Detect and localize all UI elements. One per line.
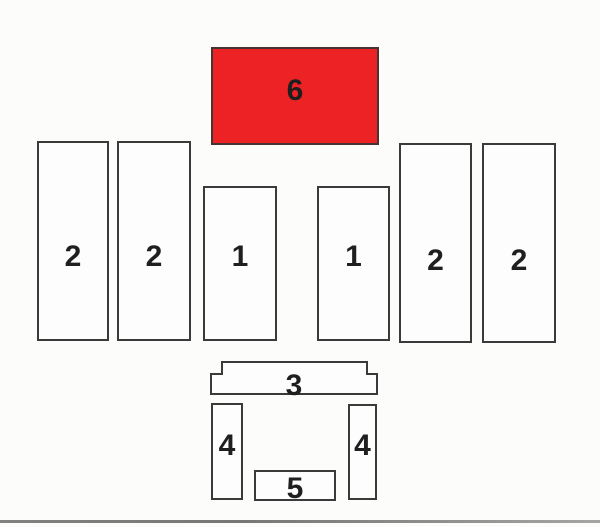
part-2-box-right-outer: 2 (482, 143, 556, 343)
part-1-box-left: 1 (203, 186, 277, 341)
part-5-box: 5 (254, 470, 336, 501)
part-6-box-highlighted: 6 (211, 47, 379, 145)
part-3-box-stepped-plate: 3 (209, 360, 379, 398)
part-4-box-left: 4 (211, 403, 243, 500)
page-scan-edge-line (0, 520, 600, 523)
part-4-label: 4 (213, 431, 241, 461)
part-3-label: 3 (209, 371, 379, 401)
part-5-label: 5 (256, 474, 334, 504)
part-4-box-right: 4 (348, 404, 377, 500)
part-2-label: 2 (119, 242, 189, 272)
part-2-label: 2 (484, 246, 554, 276)
part-2-box-left-outer: 2 (37, 141, 109, 341)
part-2-box-left-inner: 2 (117, 141, 191, 341)
stove-parts-diagram: 6 2 2 1 1 2 2 3 4 4 5 (0, 0, 600, 527)
part-4-label: 4 (350, 431, 375, 461)
part-2-box-right-inner: 2 (399, 143, 472, 343)
part-1-label: 1 (319, 242, 388, 272)
part-1-label: 1 (205, 242, 275, 272)
part-1-box-right: 1 (317, 186, 390, 341)
part-2-label: 2 (39, 242, 107, 272)
part-2-label: 2 (401, 246, 470, 276)
part-6-label: 6 (213, 76, 377, 106)
